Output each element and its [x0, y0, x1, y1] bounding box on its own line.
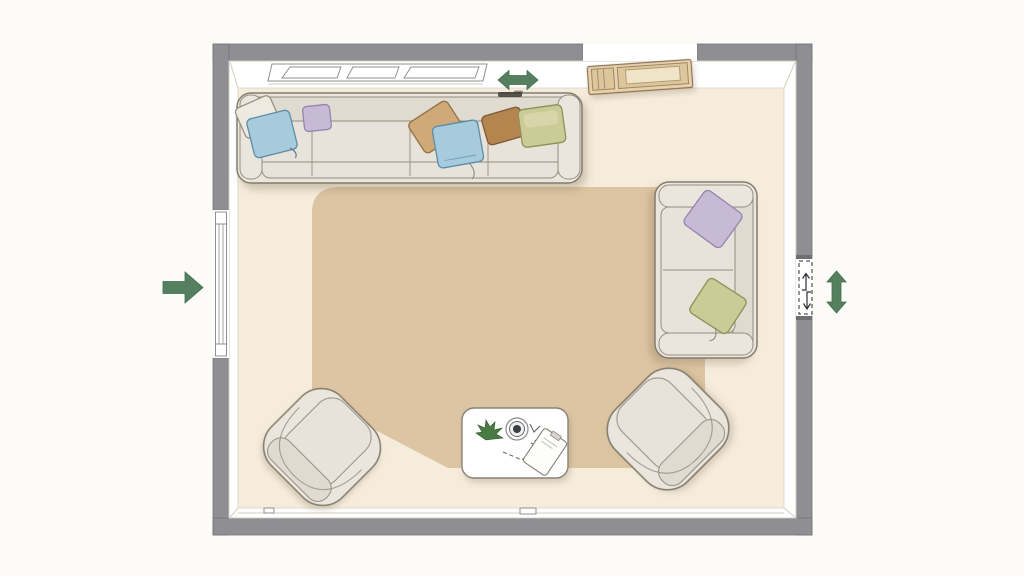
bowl	[506, 418, 528, 440]
window-jamb	[216, 212, 227, 224]
pillow-olive	[518, 104, 567, 148]
window-pane	[282, 67, 341, 78]
window-top	[268, 64, 487, 84]
coffee-table	[462, 408, 569, 478]
wall-segment-left-lower	[213, 358, 229, 535]
wall-segment-top-right	[697, 44, 812, 61]
wall-segment-left-upper	[213, 44, 229, 210]
loveseat-armrest-bottom	[659, 333, 753, 355]
door-jamb-bottom	[796, 316, 812, 320]
wall-opening-top	[583, 44, 697, 95]
door-opening	[796, 255, 812, 320]
door-jamb-top	[796, 255, 812, 259]
wall-segment-right-upper	[796, 44, 812, 258]
wall-segment-top-left	[213, 44, 583, 61]
window-pane	[404, 67, 479, 78]
window-pane	[347, 67, 399, 78]
floor-plan-canvas	[0, 0, 1024, 576]
wall-segment-right-lower	[796, 316, 812, 535]
window-left	[213, 210, 229, 358]
wall-segment-bottom	[213, 518, 812, 535]
pillow-lavender-small	[302, 104, 331, 132]
console-cabinet	[591, 68, 614, 90]
window-jamb	[216, 344, 227, 356]
floor-plan	[0, 0, 1024, 576]
